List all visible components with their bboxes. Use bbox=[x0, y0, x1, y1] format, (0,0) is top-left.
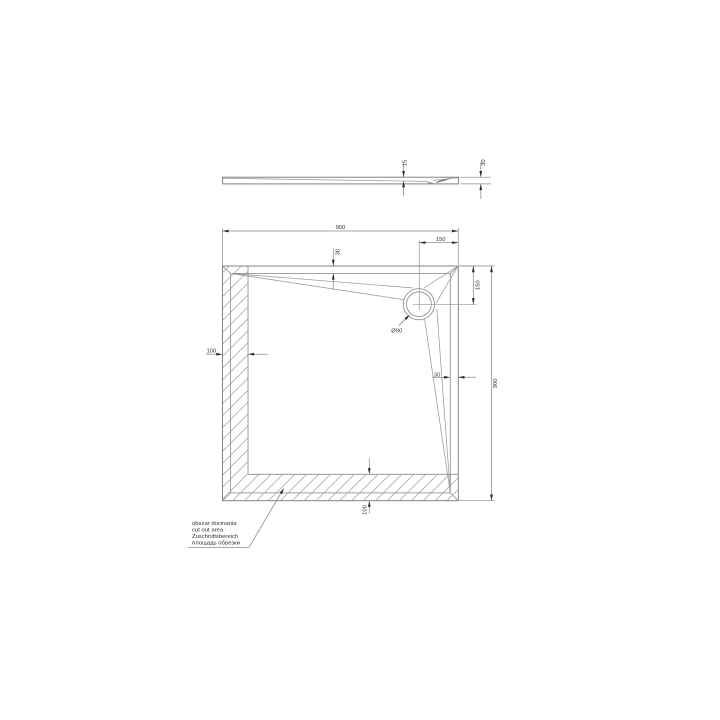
svg-text:30: 30 bbox=[434, 372, 440, 378]
svg-text:Ø90: Ø90 bbox=[391, 328, 402, 334]
svg-text:Zuschnittsbereich: Zuschnittsbereich bbox=[192, 534, 238, 540]
svg-text:obszar docinania: obszar docinania bbox=[192, 521, 237, 527]
svg-text:cut out area: cut out area bbox=[192, 528, 224, 534]
svg-text:30: 30 bbox=[336, 249, 342, 255]
svg-text:15: 15 bbox=[402, 160, 408, 166]
svg-text:900: 900 bbox=[336, 225, 346, 231]
svg-text:30: 30 bbox=[481, 159, 487, 165]
svg-text:150: 150 bbox=[436, 237, 446, 243]
svg-text:100: 100 bbox=[206, 349, 216, 355]
svg-text:100: 100 bbox=[363, 505, 369, 515]
svg-text:площадь обрезки: площадь обрезки bbox=[192, 541, 240, 547]
svg-text:900: 900 bbox=[493, 379, 499, 389]
svg-text:150: 150 bbox=[475, 280, 481, 290]
